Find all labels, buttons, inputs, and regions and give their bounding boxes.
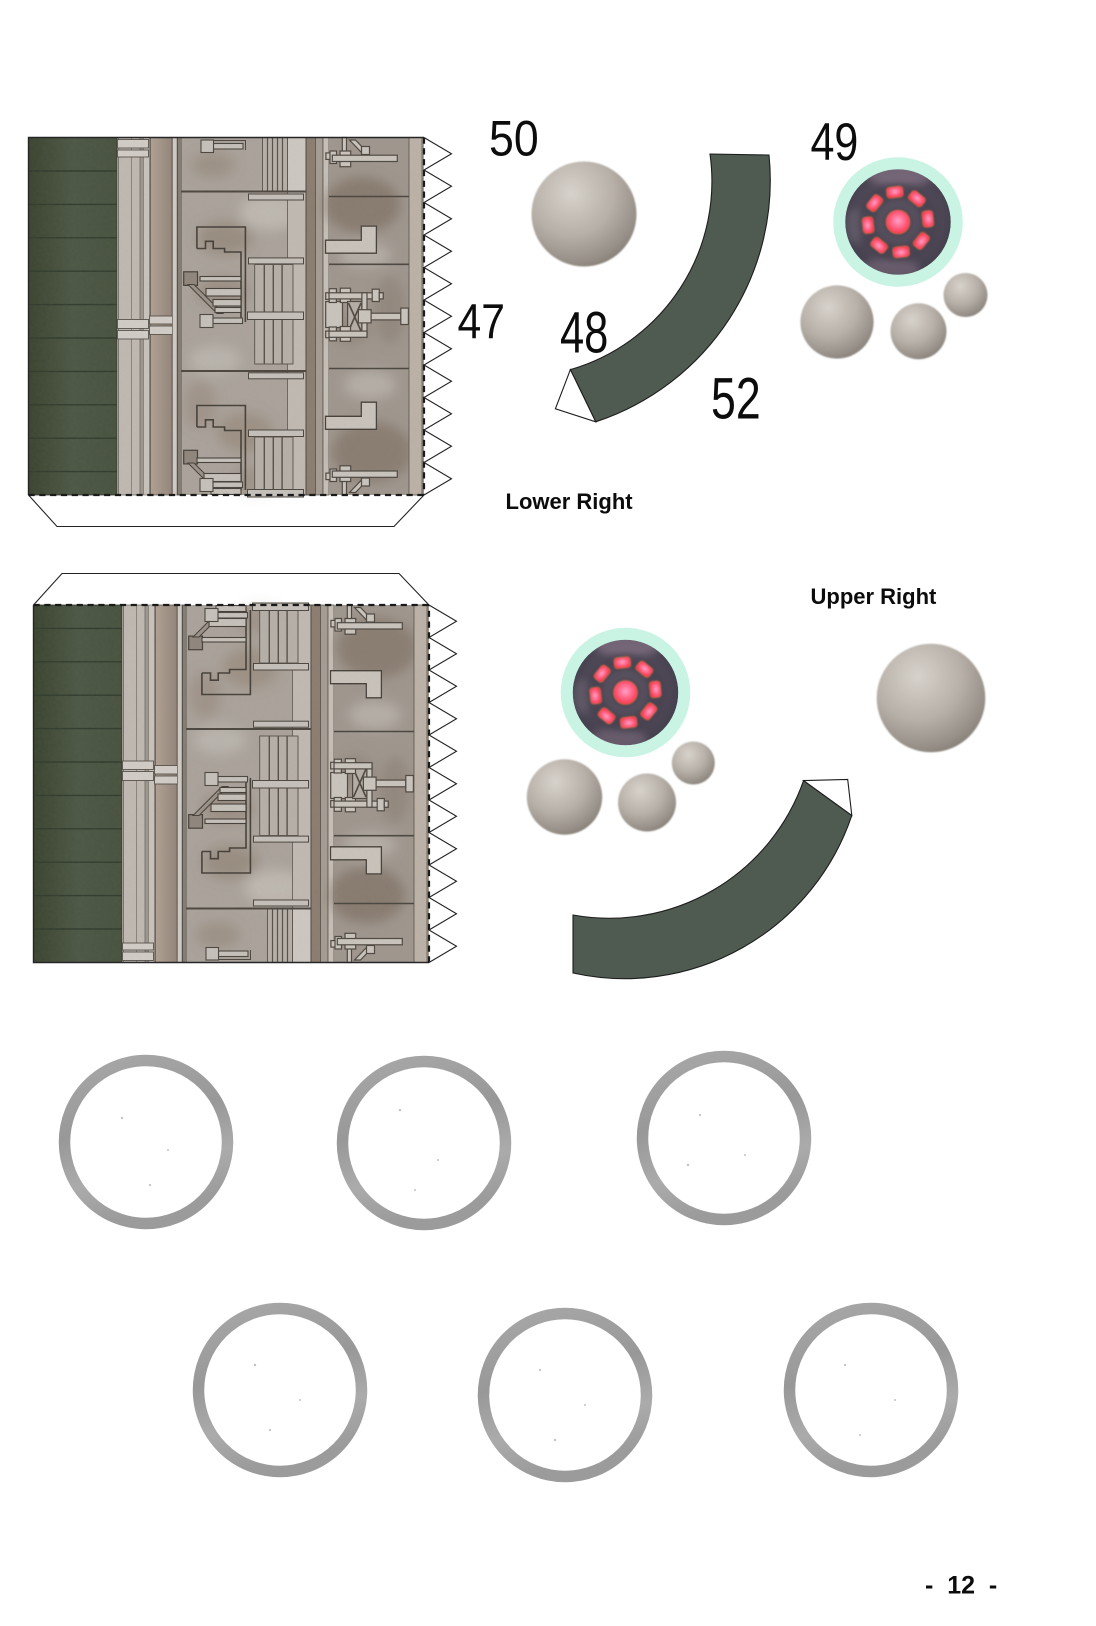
svg-text:52: 52 <box>711 366 761 431</box>
svg-text:Upper Right: Upper Right <box>811 584 938 609</box>
svg-text:48: 48 <box>560 300 608 364</box>
svg-text:49: 49 <box>811 114 859 172</box>
svg-text:50: 50 <box>489 110 539 166</box>
svg-text:47: 47 <box>457 293 504 349</box>
svg-text:- 12 -: - 12 - <box>925 1572 997 1600</box>
svg-text:Lower Right: Lower Right <box>506 489 634 514</box>
